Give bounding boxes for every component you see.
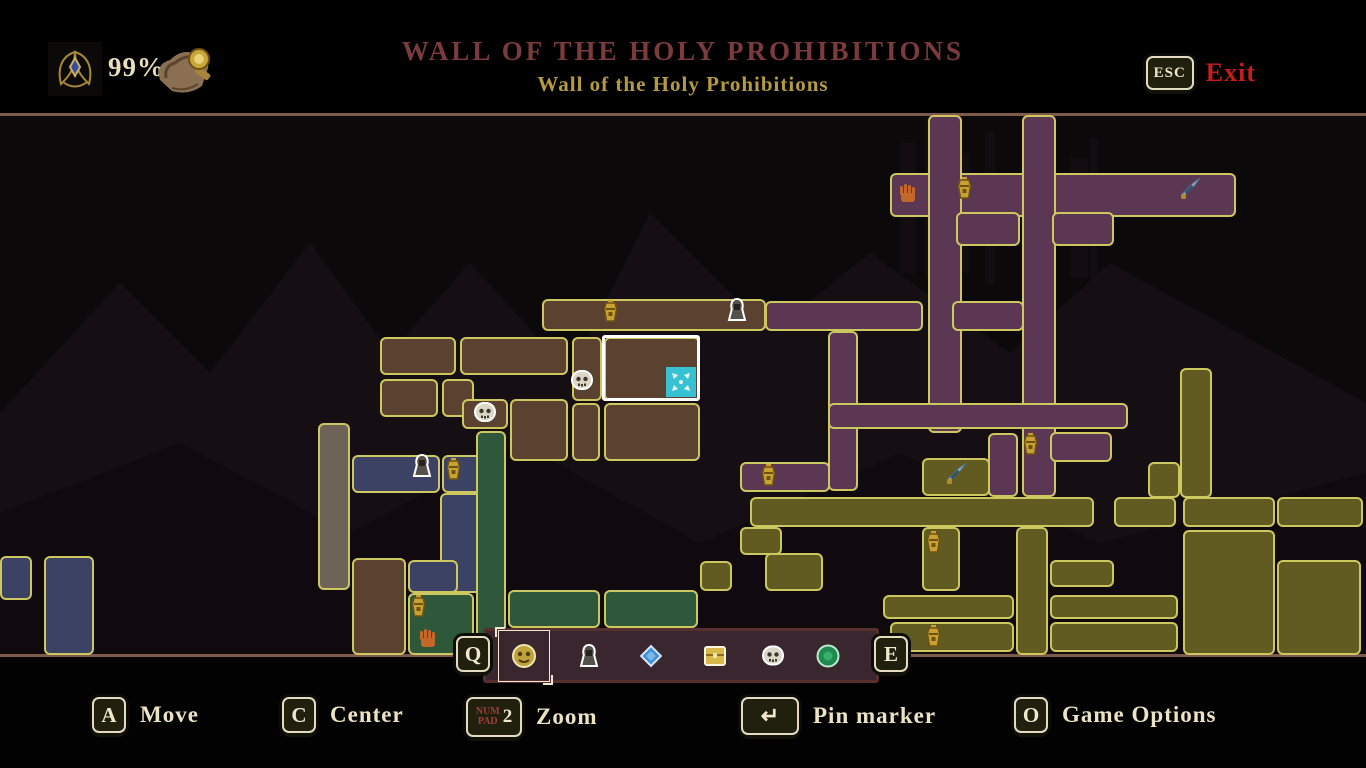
- hint-label-pin-marker: Pin marker: [813, 703, 936, 729]
- map-room: [352, 558, 406, 655]
- map-room: [765, 553, 823, 591]
- map-room: [740, 527, 782, 555]
- key-pin-marker: ↵: [741, 697, 799, 735]
- game-map-screen: 99% WALL OF THE HOLY PROHIBITIONS Wall o…: [0, 0, 1366, 768]
- map-room: [408, 560, 458, 593]
- hint-zoom: NUMPAD2Zoom: [466, 697, 598, 737]
- cycle-right-key: E: [874, 636, 908, 672]
- map-room: [380, 337, 456, 375]
- bell-marker-icon: [445, 457, 462, 481]
- map-room: [828, 403, 1128, 429]
- exit-label: Exit: [1206, 58, 1256, 88]
- marker-option-chest[interactable]: [701, 643, 729, 669]
- map-room: [952, 301, 1024, 331]
- map-room: [508, 590, 600, 628]
- map-room: [890, 622, 1014, 652]
- marker-option-skull[interactable]: [761, 645, 785, 668]
- map-boundary-line: [0, 113, 1366, 116]
- map-room: [476, 431, 506, 655]
- sword-marker-icon: [944, 460, 970, 486]
- bell-marker-icon: [925, 530, 942, 554]
- marker-option-diamond[interactable]: [637, 642, 665, 670]
- map-room: [988, 433, 1018, 497]
- top-bar: 99% WALL OF THE HOLY PROHIBITIONS Wall o…: [0, 0, 1366, 113]
- hand-marker-icon: [417, 628, 438, 649]
- bell-marker-icon: [925, 624, 942, 648]
- skull-marker-icon: [473, 401, 497, 424]
- map-room: [380, 379, 438, 417]
- map-viewport[interactable]: [0, 113, 1366, 657]
- map-room: [765, 301, 923, 331]
- marker-option-gold-mask-selected[interactable]: [510, 642, 538, 670]
- map-room: [510, 399, 568, 461]
- map-room: [604, 403, 700, 461]
- map-room: [1180, 368, 1212, 498]
- person-marker-icon: [725, 297, 749, 323]
- player-position-icon: [666, 367, 696, 397]
- bell-marker-icon: [956, 176, 973, 200]
- marker-option-person[interactable]: [577, 643, 601, 669]
- person-marker-icon: [410, 453, 434, 479]
- map-room: [1114, 497, 1176, 527]
- map-room: [1277, 497, 1363, 527]
- map-room: [318, 423, 350, 590]
- bell-marker-icon: [410, 594, 427, 618]
- cycle-left-key: Q: [456, 636, 490, 672]
- map-room: [740, 462, 830, 492]
- esc-key: ESC: [1146, 56, 1194, 90]
- map-room: [883, 595, 1014, 619]
- sword-marker-icon: [1178, 175, 1204, 201]
- map-room: [1050, 432, 1112, 462]
- map-room: [928, 115, 962, 433]
- key-center: C: [282, 697, 316, 733]
- map-room: [460, 337, 568, 375]
- map-room: [1148, 462, 1180, 498]
- hint-move: AMove: [92, 697, 199, 733]
- map-room: [0, 556, 32, 600]
- bell-marker-icon: [1022, 432, 1039, 456]
- map-room: [1050, 560, 1114, 587]
- map-room: [1052, 212, 1114, 246]
- bell-marker-icon: [760, 463, 777, 487]
- key-move: A: [92, 697, 126, 733]
- bell-marker-icon: [602, 299, 619, 323]
- map-room: [956, 212, 1020, 246]
- map-room: [1277, 560, 1361, 655]
- hint-label-center: Center: [330, 702, 404, 728]
- hint-label-zoom: Zoom: [536, 704, 598, 730]
- map-room: [1183, 530, 1275, 655]
- key-zoom: NUMPAD2: [466, 697, 522, 737]
- map-room: [604, 590, 698, 628]
- hint-center: CCenter: [282, 697, 404, 733]
- map-room: [44, 556, 94, 655]
- map-room: [700, 561, 732, 591]
- hand-marker-icon: [897, 183, 918, 204]
- hint-label-game-options: Game Options: [1062, 702, 1216, 728]
- map-room: [1050, 595, 1178, 619]
- marker-option-orb[interactable]: [815, 643, 841, 669]
- key-game-options: O: [1014, 697, 1048, 733]
- map-room: [572, 403, 600, 461]
- hint-label-move: Move: [140, 702, 199, 728]
- map-room: [1016, 527, 1048, 655]
- hint-game-options: OGame Options: [1014, 697, 1216, 733]
- map-room: [1183, 497, 1275, 527]
- hint-pin-marker: ↵Pin marker: [741, 697, 936, 735]
- map-room: [750, 497, 1094, 527]
- map-room: [1050, 622, 1178, 652]
- skull-marker-icon: [570, 369, 594, 392]
- exit-button[interactable]: ESC Exit: [1146, 56, 1256, 90]
